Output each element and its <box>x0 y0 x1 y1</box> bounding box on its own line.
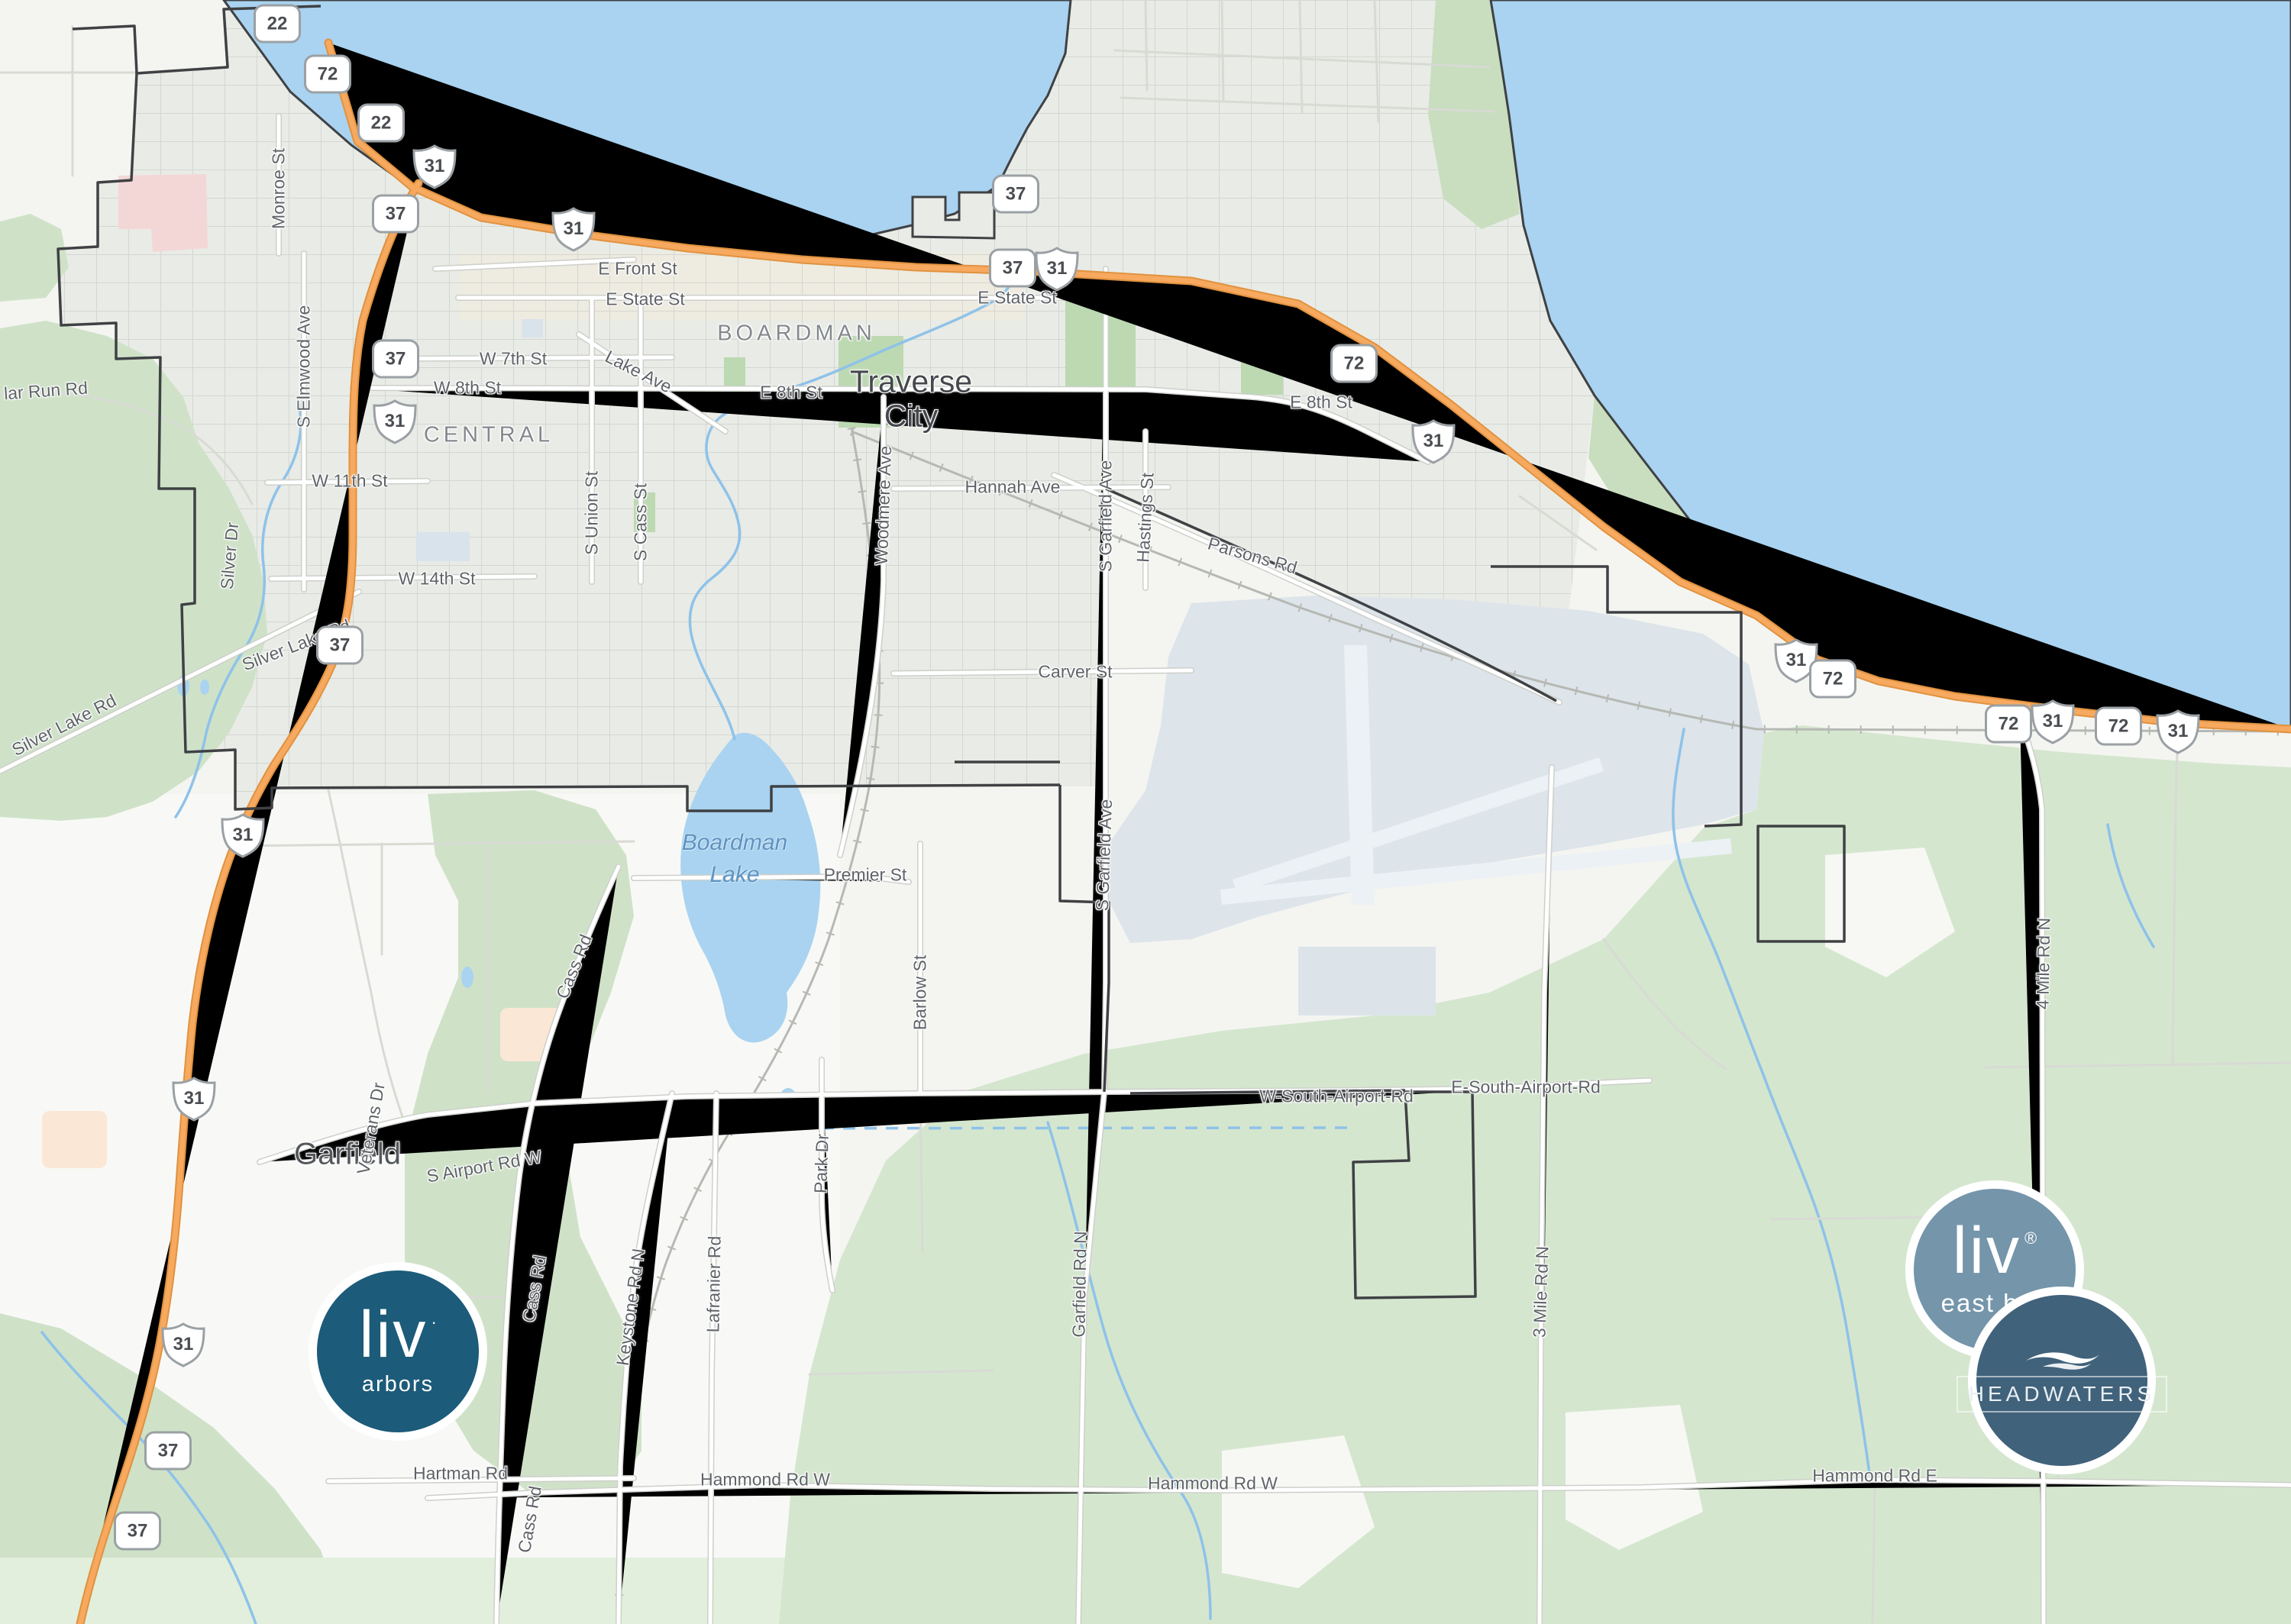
route-shield-31: 31 <box>2154 709 2202 753</box>
street-label: E 8th St <box>760 383 822 403</box>
route-shield-37: 37 <box>114 1512 161 1551</box>
route-shield-72: 72 <box>1985 705 2032 744</box>
water-label: Boardman <box>682 830 787 856</box>
route-shield-37: 37 <box>989 249 1036 288</box>
locality-label: Garfield <box>294 1138 401 1172</box>
street-label: S Garfield Ave <box>1092 799 1116 911</box>
street-label: S Elmwood Ave <box>294 305 315 428</box>
logo-headwaters[interactable]: HEADWATERS <box>1976 1295 2147 1466</box>
route-shield-72: 72 <box>1330 344 1378 383</box>
logo-liv-arbors[interactable]: liv· arbors <box>317 1270 479 1432</box>
street-label: E-South-Airport-Rd <box>1451 1077 1601 1098</box>
route-shield-22: 22 <box>357 104 405 143</box>
street-label: E State St <box>606 289 685 310</box>
route-shield-31: 31 <box>219 812 267 857</box>
street-label: 4 Mile Rd N <box>2032 918 2054 1010</box>
liv-wordmark: liv· <box>359 1306 437 1364</box>
street-label: Hammond Rd W <box>1148 1474 1278 1494</box>
route-shield-37: 37 <box>372 195 419 234</box>
street-label: Woodmere Ave <box>871 445 896 565</box>
street-label: Hammond Rd W <box>700 1470 830 1490</box>
route-shield-31: 31 <box>160 1322 207 1366</box>
street-label: W 8th St <box>434 378 501 399</box>
street-label: W-South-Airport-Rd <box>1259 1086 1414 1107</box>
street-label: W 14th St <box>399 569 476 589</box>
street-label: E Front St <box>598 259 677 279</box>
route-shield-31: 31 <box>170 1076 218 1120</box>
street-label: S Garfield Ave <box>1096 460 1116 573</box>
logo-community-name: HEADWATERS <box>1957 1376 2167 1413</box>
street-label: Barlow St <box>910 955 931 1030</box>
street-label: W 11th St <box>312 471 387 492</box>
route-shield-37: 37 <box>316 626 364 665</box>
street-label: Hartman Rd <box>413 1464 508 1484</box>
route-shield-37: 37 <box>372 340 419 379</box>
route-shield-37: 37 <box>992 175 1039 214</box>
liv-wordmark: liv® <box>1953 1222 2037 1280</box>
route-shield-37: 37 <box>144 1432 192 1471</box>
route-shield-72: 72 <box>2095 707 2142 746</box>
route-shield-31: 31 <box>411 144 458 188</box>
route-shield-31: 31 <box>2029 699 2076 743</box>
route-shield-31: 31 <box>550 206 597 250</box>
route-shield-31: 31 <box>371 399 418 443</box>
route-shield-72: 72 <box>1809 660 1856 699</box>
route-shield-22: 22 <box>254 5 301 44</box>
street-label: Hannah Ave <box>965 477 1061 498</box>
district-label: BOARDMAN <box>717 321 876 347</box>
route-shield-72: 72 <box>304 55 351 94</box>
street-label: Garfield Rd N <box>1068 1231 1091 1338</box>
street-label: E 8th St <box>1290 392 1352 413</box>
street-label: Carver St <box>1038 662 1112 683</box>
street-label: Lafranier Rd <box>703 1235 725 1332</box>
street-label: 3 Mile Rd N <box>1529 1245 1553 1338</box>
map-viewport[interactable]: BOARDMANCENTRALTraverseCityGarfieldBoard… <box>0 0 2291 1624</box>
route-shield-31: 31 <box>1410 418 1457 463</box>
street-label: Monroe St <box>269 148 289 229</box>
water-label: Lake <box>709 862 759 888</box>
street-label: Hammond Rd E <box>1812 1466 1937 1487</box>
street-label: Premier St <box>824 865 907 886</box>
district-label: CENTRAL <box>424 423 554 448</box>
street-label: Park Dr <box>810 1134 833 1194</box>
street-label: W 7th St <box>480 349 547 370</box>
logo-community-name: arbors <box>362 1372 434 1397</box>
city-label: Traverse <box>850 364 972 400</box>
city-label: City <box>884 399 939 434</box>
street-label: S Cass St <box>631 483 651 561</box>
route-shield-31: 31 <box>1033 246 1081 290</box>
wave-icon <box>2020 1348 2104 1371</box>
street-label: S Union St <box>582 471 603 555</box>
